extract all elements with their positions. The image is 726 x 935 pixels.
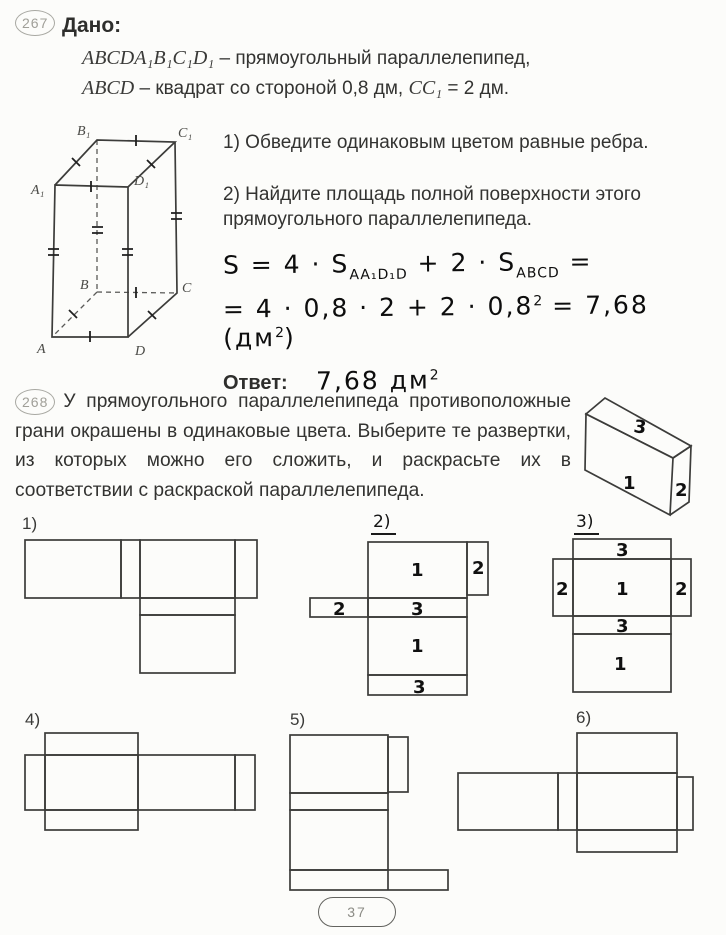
net1-face <box>140 615 235 673</box>
box2-top-label: 3 <box>632 416 647 439</box>
problem2-block: 268У прямоугольного параллелепипеда прот… <box>15 387 571 505</box>
vertex-label-d: D <box>134 344 145 359</box>
top-face <box>55 140 175 187</box>
net6-face <box>558 773 577 830</box>
given-label: Дано: <box>62 14 121 38</box>
net-5-diagram <box>283 708 455 896</box>
net2-num-strip2: 3 <box>413 677 426 698</box>
answer-value-sup: 2 <box>430 367 439 383</box>
net-6: 6) <box>450 708 700 858</box>
given-1-text: – прямоугольный параллелепипед, <box>214 48 530 69</box>
net-5-label: 5) <box>290 710 305 730</box>
net2-num-top: 1 <box>411 560 424 581</box>
given-2-text: – квадрат со стороной 0,8 дм, <box>134 78 408 99</box>
sol1-sub2: ABCD <box>516 265 560 281</box>
net4-face <box>45 755 138 810</box>
net5-face <box>290 870 448 890</box>
net5-face <box>388 737 408 792</box>
net3-num-center: 1 <box>616 579 629 600</box>
net5-face <box>290 793 388 810</box>
net3-num-left: 2 <box>556 579 569 600</box>
net3-num-right: 2 <box>675 579 688 600</box>
net-3: 3) 3 2 1 2 3 1 <box>548 512 700 700</box>
vertex-label-c1: C₁ <box>178 126 192 141</box>
net-1-diagram <box>20 512 265 682</box>
problem1-tasks: 1) Обведите одинаковым цветом равные реб… <box>223 130 721 395</box>
net6-face <box>577 773 677 830</box>
solution-line-2: = 4 · 0,8 · 2 + 2 · 0,82 = 7,68 (дм2) <box>223 289 722 352</box>
net-4: 4) <box>20 710 262 838</box>
net-1-label: 1) <box>22 514 37 534</box>
box2-side-label: 2 <box>675 480 688 501</box>
net2-num-left: 2 <box>333 599 346 620</box>
sol1-p3: = <box>559 247 592 276</box>
net3-num-bottom: 1 <box>614 654 627 675</box>
net5-face <box>290 735 388 793</box>
net1-face <box>140 540 235 598</box>
net6-face <box>577 830 677 852</box>
colored-parallelepiped-figure: 3 1 2 <box>575 388 720 520</box>
net-6-label: 6) <box>576 708 591 728</box>
sol1-p1: S = 4 · S <box>223 249 350 279</box>
solution-line-1: S = 4 · SAA₁D₁D + 2 · SABCD = <box>223 245 721 284</box>
vertex-label-d1: D₁ <box>133 174 149 189</box>
net-1: 1) <box>20 512 265 682</box>
net4-face <box>45 733 138 755</box>
net1-face <box>140 598 235 615</box>
right-face <box>128 142 177 337</box>
page-number: 37 <box>347 904 367 920</box>
net2-num-strip1: 3 <box>411 599 424 620</box>
net1-face <box>121 540 140 598</box>
given-line-1: ABCDA₁B₁C₁D₁ – прямоугольный параллелепи… <box>82 46 530 71</box>
net4-face <box>235 755 255 810</box>
net-4-diagram <box>20 710 262 838</box>
parallelepiped-figure: A₁ B₁ C₁ D₁ A D C B <box>25 122 200 362</box>
net-2: 2) 1 2 2 3 1 3 <box>305 512 495 700</box>
net1-face <box>25 540 121 598</box>
net2-num-right: 2 <box>472 558 485 579</box>
net-3-diagram: 3 2 1 2 3 1 <box>548 512 700 700</box>
net4-face <box>138 755 235 810</box>
sol2-p1: = 4 · 0,8 · 2 + 2 · 0,8 <box>223 291 534 323</box>
net-4-label: 4) <box>25 710 40 730</box>
net5-face <box>290 810 388 870</box>
net3-num-topstrip: 3 <box>616 540 629 561</box>
given-1-math: ABCDA₁B₁C₁D₁ <box>82 47 214 69</box>
front-face <box>52 185 128 337</box>
vertex-label-a1: A₁ <box>30 183 44 198</box>
net4-face <box>25 755 45 810</box>
vertex-label-b1: B₁ <box>77 124 90 139</box>
net-6-diagram <box>450 708 700 858</box>
task-2: 2) Найдите площадь полной поверхности эт… <box>223 182 705 232</box>
page-number-pill: 37 <box>318 897 396 927</box>
workbook-page: 267 Дано: ABCDA₁B₁C₁D₁ – прямоугольный п… <box>0 0 726 935</box>
problem2-text: У прямоугольного параллелепипеда противо… <box>15 391 571 501</box>
net3-num-midstrip: 3 <box>616 616 629 637</box>
sol1-p2: + 2 · S <box>407 248 516 278</box>
sol1-sub1: AA₁D₁D <box>349 267 408 284</box>
net6-face <box>677 777 693 830</box>
task-1: 1) Обведите одинаковым цветом равные реб… <box>223 130 721 155</box>
net2-num-middle: 1 <box>411 636 424 657</box>
vertex-label-a: A <box>36 342 46 357</box>
given-2-text-b: = 2 дм. <box>442 78 509 99</box>
problem1-number-badge: 267 <box>15 10 55 36</box>
net1-face <box>235 540 257 598</box>
hidden-edge-bc <box>97 292 177 293</box>
net4-face <box>45 810 138 830</box>
sol2-p3: ) <box>284 323 296 352</box>
box2-front-label: 1 <box>623 473 636 494</box>
net6-face <box>577 733 677 773</box>
vertex-label-b: B <box>80 278 89 293</box>
problem2-number: 268 <box>15 389 55 415</box>
net-3-label: 3) <box>574 512 599 535</box>
sol2-sup2: 2 <box>275 325 284 341</box>
net-2-diagram: 1 2 2 3 1 3 <box>305 512 495 700</box>
problem1-number: 267 <box>15 10 55 36</box>
given-line-2: ABCD – квадрат со стороной 0,8 дм, CC₁ =… <box>82 76 509 101</box>
vertex-label-c: C <box>182 281 192 296</box>
net6-face <box>458 773 558 830</box>
net-5: 5) <box>283 708 455 896</box>
given-2-math-b: CC₁ <box>409 77 443 99</box>
given-2-math-a: ABCD <box>82 77 134 99</box>
net-2-label: 2) <box>371 512 396 535</box>
